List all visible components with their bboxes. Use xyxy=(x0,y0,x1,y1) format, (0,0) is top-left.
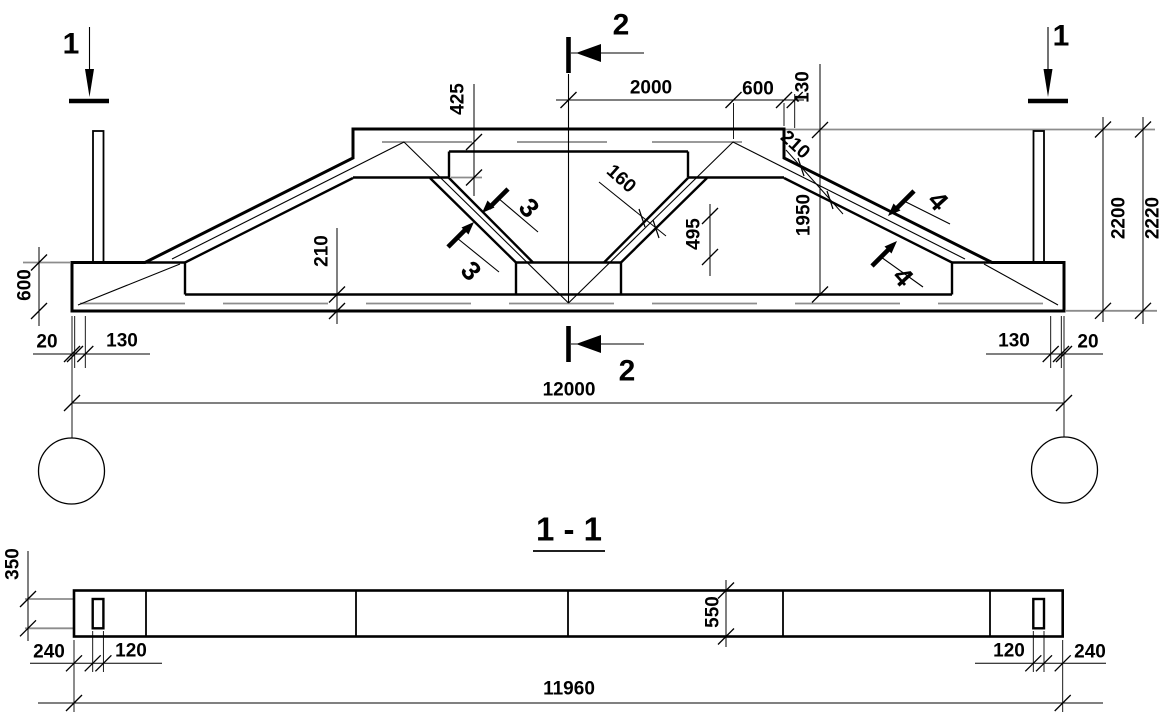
dim-240-left: 240 xyxy=(33,642,65,663)
section-cut-marker-2-bottom: 2 xyxy=(569,326,645,388)
section-cut-marker-3-lower: 3 xyxy=(448,222,499,287)
dim-120-right: 120 xyxy=(993,641,1025,662)
section-division-lines xyxy=(146,591,990,637)
dim-600-left: 600 xyxy=(15,269,36,301)
cut-arrow-left-icon xyxy=(576,335,601,353)
section-cut-marker-1-left: 1 xyxy=(63,27,109,101)
dim-11960: 11960 xyxy=(543,679,595,700)
cut-arrow-left-icon xyxy=(576,44,601,62)
cut-label-2-top: 2 xyxy=(613,9,630,42)
dim-160-group: 160 xyxy=(599,161,666,238)
grid-bubble-left xyxy=(39,438,105,504)
post-section-right xyxy=(1033,599,1044,628)
dim-11960-group: 11960 xyxy=(38,640,1103,712)
dim-20-left: 20 xyxy=(36,332,57,353)
dim-425: 425 xyxy=(448,83,469,115)
dim-350: 350 xyxy=(3,548,24,580)
dim-240-right: 240 xyxy=(1074,642,1106,663)
grid-bubble-right xyxy=(1032,437,1098,503)
dim-2200: 2200 xyxy=(1109,197,1130,239)
dim-210-chord: 210 xyxy=(312,235,333,267)
dim-height-group: 2200 2220 xyxy=(1095,117,1161,324)
dim-120-left: 120 xyxy=(115,641,147,662)
cut-label-1-left: 1 xyxy=(63,28,80,61)
dim-bottom-left-group: 20 130 xyxy=(33,316,150,368)
dim-1950: 1950 xyxy=(794,194,815,236)
cut-label-3-upper: 3 xyxy=(513,192,545,223)
cut-label-2-bottom: 2 xyxy=(619,355,636,388)
dim-350-group: 350 xyxy=(3,548,37,641)
section-cut-marker-1-right: 1 xyxy=(1028,20,1069,102)
cut-arrow-down-icon xyxy=(85,69,94,97)
post-left xyxy=(93,131,104,263)
dim-2000: 2000 xyxy=(630,78,672,99)
cut-arrow-down-icon xyxy=(1044,69,1053,97)
dim-550: 550 xyxy=(703,596,724,628)
dim-2220: 2220 xyxy=(1143,197,1161,239)
dim-600-left-group: 600 xyxy=(15,247,48,326)
dim-bottom-right-group: 130 20 xyxy=(986,316,1103,368)
section-cut-marker-4-lower: 4 xyxy=(872,241,923,293)
dim-495: 495 xyxy=(684,218,705,250)
post-right xyxy=(1034,131,1045,263)
dim-12000: 12000 xyxy=(543,380,596,401)
cut-label-1-right: 1 xyxy=(1053,20,1070,53)
elevation-view: 1 1 2 2 3 xyxy=(15,9,1161,505)
section-cut-marker-3-upper: 3 xyxy=(482,189,545,232)
cut-label-3-lower: 3 xyxy=(455,255,487,286)
grid-bubbles xyxy=(39,437,1098,504)
dim-130-top: 130 xyxy=(793,71,814,103)
post-section-left xyxy=(93,599,104,628)
section-cut-marker-4-upper: 4 xyxy=(888,185,954,224)
cut-label-4-lower: 4 xyxy=(887,261,919,292)
dim-495-group: 495 xyxy=(684,204,719,276)
dim-130-right: 130 xyxy=(998,331,1030,352)
dim-425-group: 425 xyxy=(448,83,483,196)
dim-130-left: 130 xyxy=(106,331,138,352)
dim-210-slope: 210 xyxy=(776,127,814,164)
section-title: 1 - 1 xyxy=(536,511,602,548)
dim-20-right: 20 xyxy=(1077,332,1098,353)
section-1-1-view: 1 - 1 350 550 xyxy=(3,511,1107,713)
section-cut-marker-2-top: 2 xyxy=(569,9,645,74)
dim-600-top: 600 xyxy=(742,79,774,100)
reference-lines xyxy=(23,130,1157,311)
dim-160: 160 xyxy=(602,161,640,198)
drawing-canvas: 1 1 2 2 3 xyxy=(0,0,1161,718)
